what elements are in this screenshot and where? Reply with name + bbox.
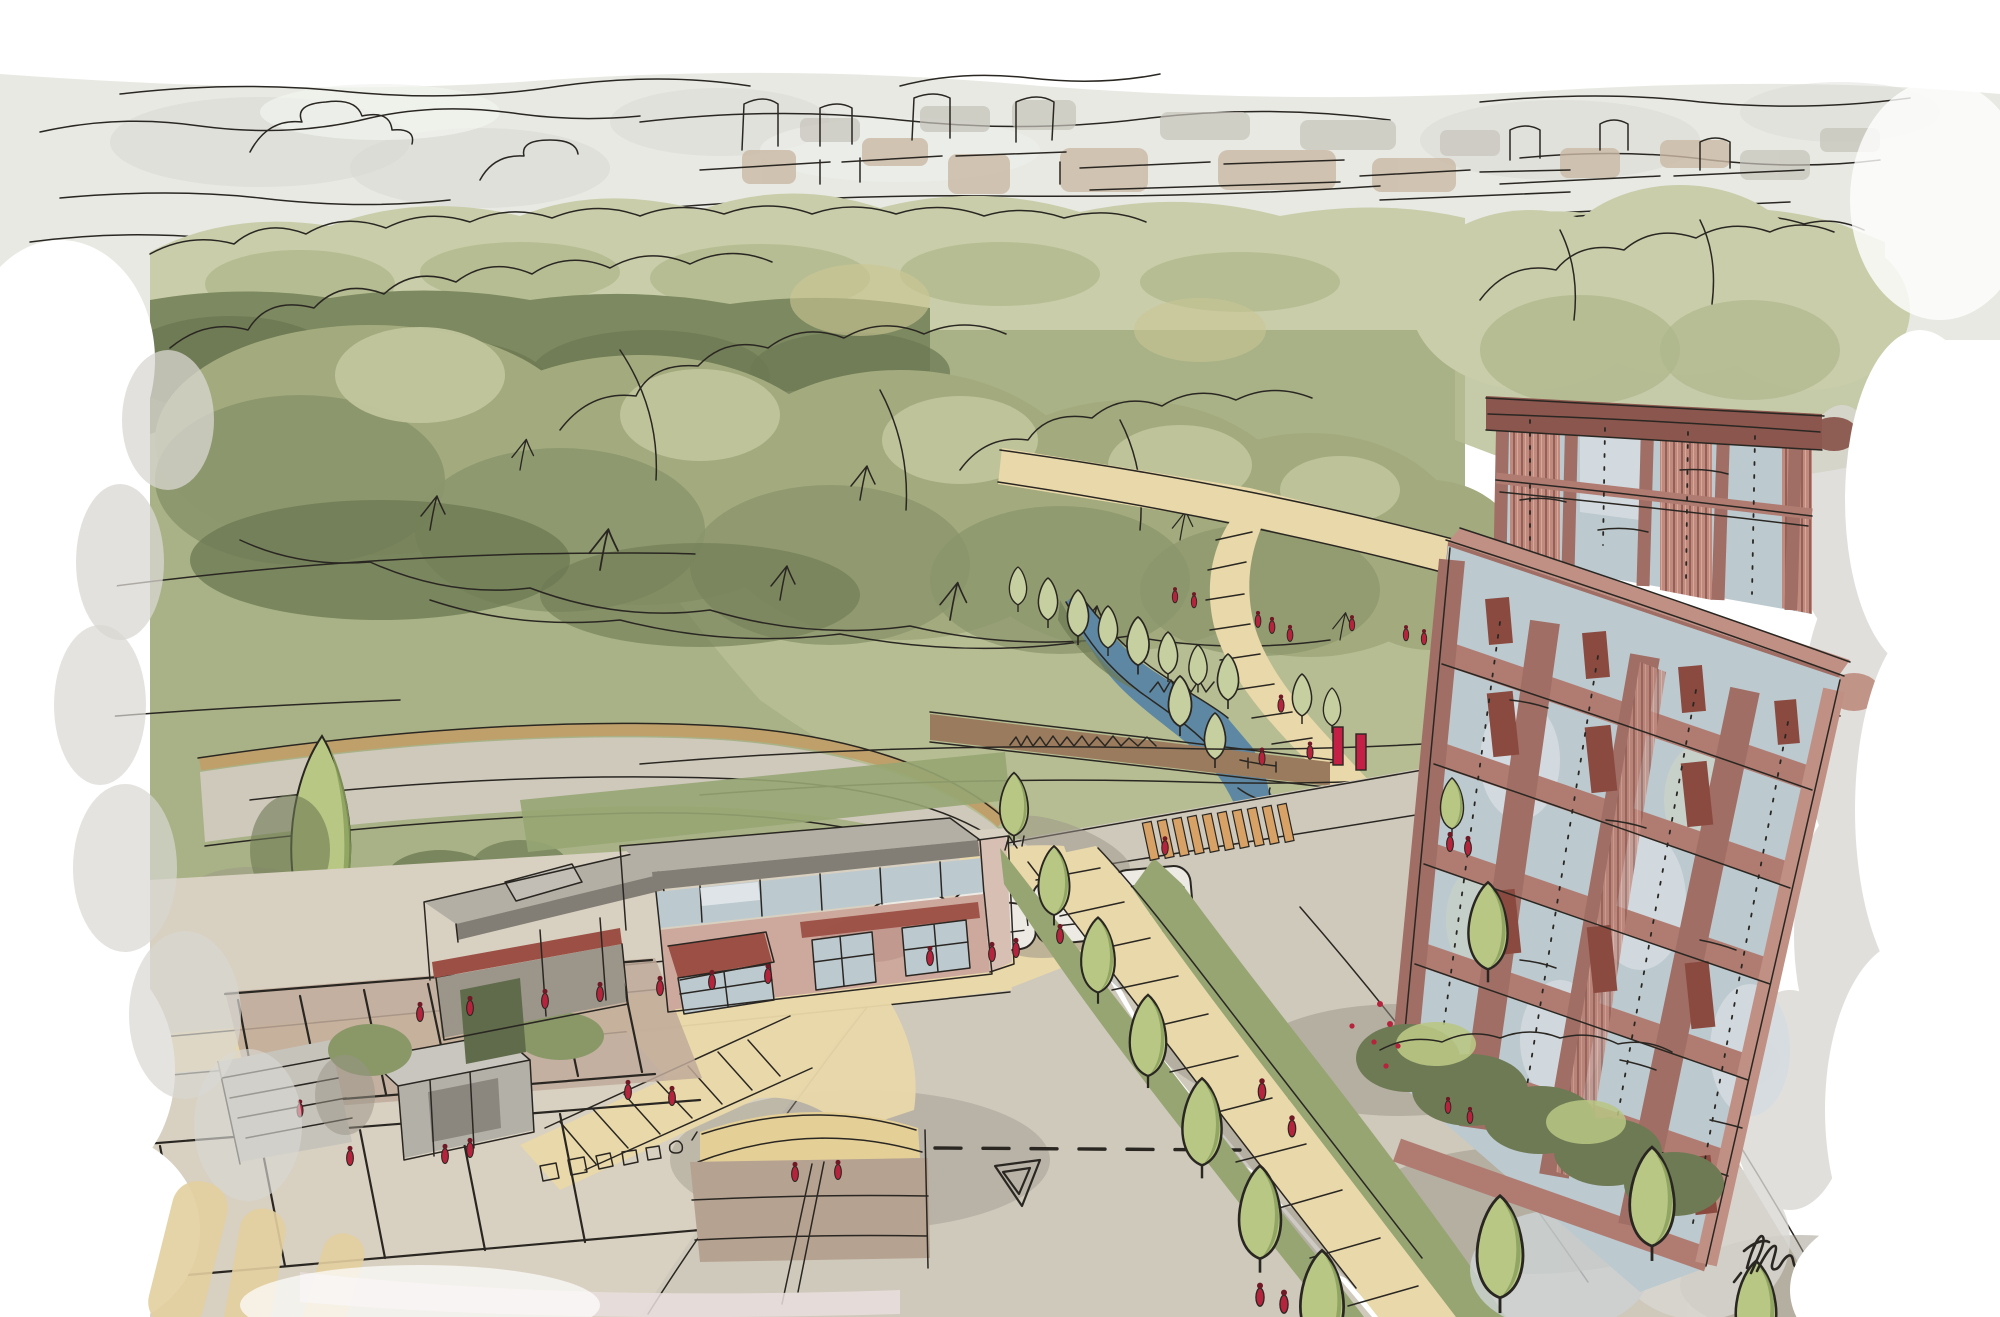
concept-sketch-illustration: Hand-drawn aerial architectural concept … [0, 0, 2000, 1317]
sketch-canvas: Hand-drawn aerial architectural concept … [0, 0, 2000, 1317]
